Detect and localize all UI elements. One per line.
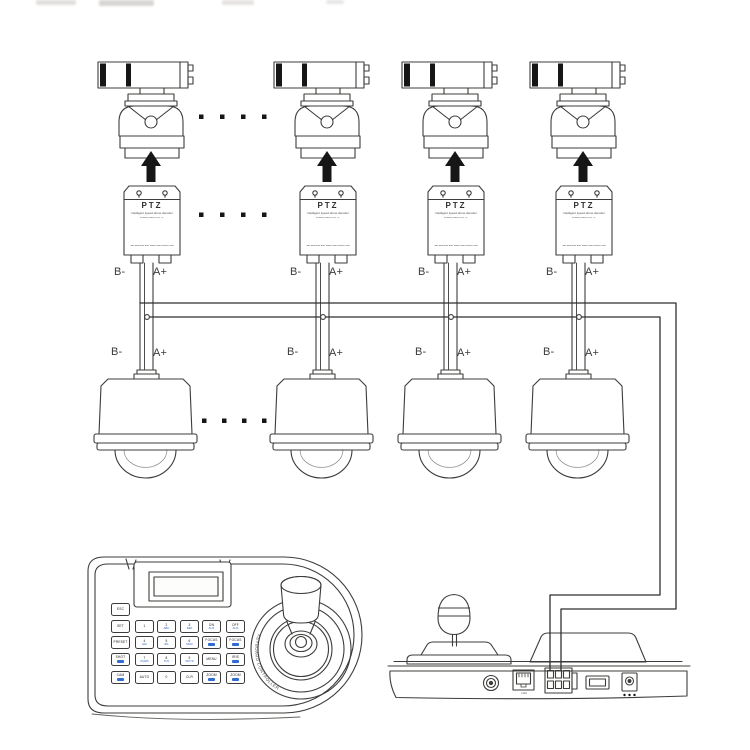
keypad-key: 2ABC bbox=[157, 620, 176, 633]
ptz-decoder-subtext: Intelligent speed dome decoder bbox=[557, 212, 611, 215]
wire-label-b: B- bbox=[415, 346, 426, 358]
dome-camera-4 bbox=[526, 379, 629, 478]
ptz-decoder-subtext: RS485 PELCO-D / P bbox=[437, 217, 475, 220]
ptz-decoder-footnote: Set address and baud rate before use bbox=[429, 245, 483, 248]
keypad-key: SHOT bbox=[111, 653, 130, 666]
pan-tilt-camera-3 bbox=[402, 62, 497, 158]
ptz-decoder-title: PTZ bbox=[122, 201, 182, 210]
ptz-decoder-title: PTZ bbox=[426, 201, 486, 210]
ptz-decoder-subtext: RS485 PELCO-D / P bbox=[565, 217, 603, 220]
keypad-key: SET bbox=[111, 620, 130, 633]
wire-label-a: A+ bbox=[153, 347, 167, 359]
ptz-decoder-title: PTZ bbox=[554, 201, 614, 210]
keypad-key: ZOOM bbox=[202, 671, 221, 684]
keypad-key: 8TUV bbox=[157, 653, 176, 666]
ptz-decoder-2 bbox=[300, 186, 356, 263]
keypad-key: FOCUS bbox=[226, 636, 245, 649]
wire-label-a: A+ bbox=[585, 266, 599, 278]
wire-label-a: A+ bbox=[153, 266, 167, 278]
dome-camera-3 bbox=[398, 379, 501, 478]
wire-label-b: B- bbox=[287, 346, 298, 358]
ellipsis-dots-cameras bbox=[199, 115, 267, 120]
wire-label-a: A+ bbox=[329, 266, 343, 278]
dome-camera-1 bbox=[94, 379, 197, 478]
wire-label-a: A+ bbox=[457, 347, 471, 359]
ptz-decoder-1 bbox=[124, 186, 180, 263]
wiring-diagram: KEYBOARD CONTROLLER bbox=[0, 0, 750, 750]
esc-key: ESC bbox=[111, 603, 130, 616]
wire-label-b: B- bbox=[543, 346, 554, 358]
wire-label-b: B- bbox=[546, 266, 557, 278]
keypad-key: IRIS bbox=[226, 653, 245, 666]
pan-tilt-camera-1 bbox=[98, 62, 193, 158]
pan-tilt-camera-2 bbox=[274, 62, 369, 158]
dome-camera-2 bbox=[270, 379, 373, 478]
base-edge bbox=[92, 714, 300, 719]
ptz-decoder-subtext: Intelligent speed dome decoder bbox=[125, 212, 179, 215]
ptz-decoder-subtext: Intelligent speed dome decoder bbox=[301, 212, 355, 215]
ellipsis-dots-domes bbox=[202, 419, 267, 424]
wire-label-b: B- bbox=[111, 346, 122, 358]
keypad-key: 7PQRS bbox=[135, 653, 154, 666]
ptz-decoder-title: PTZ bbox=[298, 201, 358, 210]
signal-conduit-3 bbox=[438, 263, 463, 379]
keypad-key: 4GHI bbox=[135, 636, 154, 649]
keypad-key: ONAUX bbox=[202, 620, 221, 633]
keypad-key: AUTO bbox=[135, 671, 154, 684]
keypad-key: 9WXYZ bbox=[180, 653, 199, 666]
lcd-display bbox=[134, 562, 231, 607]
wire-label-b: B- bbox=[418, 266, 429, 278]
wire-label-a: A+ bbox=[457, 266, 471, 278]
ellipsis-dots-decoders bbox=[199, 213, 267, 218]
ptz-decoder-4 bbox=[556, 186, 612, 263]
joystick-side bbox=[407, 595, 511, 665]
wire-label-b: B- bbox=[290, 266, 301, 278]
pan-tilt-camera-4 bbox=[530, 62, 625, 158]
keypad-key: CAM bbox=[111, 671, 130, 684]
ptz-decoder-footnote: Set address and baud rate before use bbox=[301, 245, 355, 248]
ptz-decoder-subtext: RS485 PELCO-D / P bbox=[133, 217, 171, 220]
ptz-decoder-subtext: Intelligent speed dome decoder bbox=[429, 212, 483, 215]
wire-label-b: B- bbox=[114, 266, 125, 278]
lan-port-label: LAN bbox=[515, 692, 533, 695]
keypad-key: MENU bbox=[202, 653, 221, 666]
keypad-key: 5JKL bbox=[157, 636, 176, 649]
keypad-key: 1 bbox=[135, 620, 154, 633]
signal-conduit-2 bbox=[310, 263, 335, 379]
ptz-decoder-footnote: Set address and baud rate before use bbox=[125, 245, 179, 248]
ptz-decoder-3 bbox=[428, 186, 484, 263]
keypad-key: PRESET bbox=[111, 636, 130, 649]
keypad-key: FOCUS bbox=[202, 636, 221, 649]
wire-label-a: A+ bbox=[329, 347, 343, 359]
keypad-key: 6MNO bbox=[180, 636, 199, 649]
keypad-key: 3DEF bbox=[180, 620, 199, 633]
controller-back-panel bbox=[530, 633, 646, 662]
side-controller bbox=[388, 595, 690, 699]
keypad-key: CLR bbox=[180, 671, 199, 684]
ptz-decoder-footnote: Set address and baud rate before use bbox=[557, 245, 611, 248]
keypad-key: 0 bbox=[157, 671, 176, 684]
signal-conduit-1 bbox=[134, 263, 159, 379]
keypad-key: ZOOM bbox=[226, 671, 245, 684]
signal-conduit-4 bbox=[566, 263, 591, 379]
keypad-key: OFFAUX bbox=[226, 620, 245, 633]
rear-face bbox=[390, 671, 687, 699]
ptz-decoder-subtext: RS485 PELCO-D / P bbox=[309, 217, 347, 220]
wire-label-a: A+ bbox=[585, 347, 599, 359]
